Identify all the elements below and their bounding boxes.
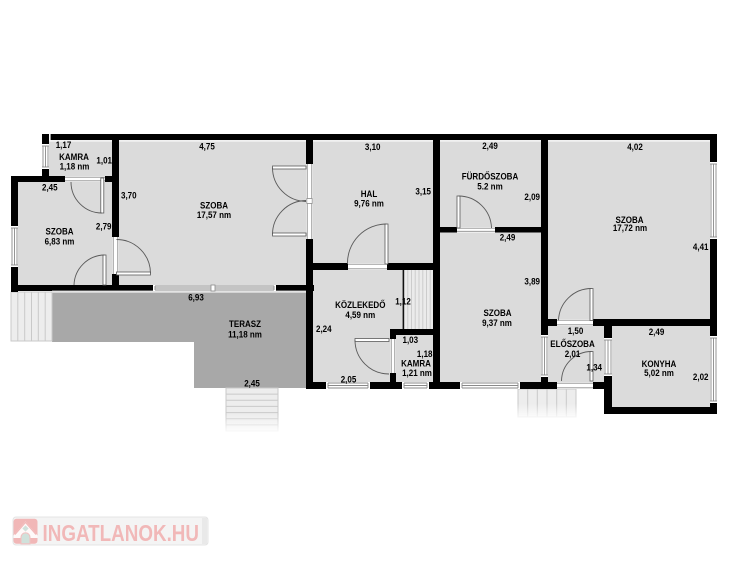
- svg-text:5,02 nm: 5,02 nm: [644, 368, 674, 378]
- svg-text:17,57 nm: 17,57 nm: [197, 210, 231, 220]
- svg-text:2,45: 2,45: [244, 378, 260, 388]
- svg-text:17,72 nm: 17,72 nm: [613, 223, 647, 233]
- svg-text:2,02: 2,02: [693, 372, 709, 382]
- svg-text:FÜRDŐSZOBA: FÜRDŐSZOBA: [462, 171, 519, 182]
- svg-text:11,18 nm: 11,18 nm: [228, 330, 262, 340]
- svg-text:3,89: 3,89: [524, 277, 540, 287]
- svg-text:2,05: 2,05: [341, 375, 357, 385]
- svg-text:1,50: 1,50: [568, 326, 584, 336]
- svg-text:3,70: 3,70: [121, 191, 137, 201]
- svg-text:4,75: 4,75: [199, 142, 215, 152]
- svg-text:KÖZLEKEDŐ: KÖZLEKEDŐ: [335, 299, 385, 310]
- svg-text:2,24: 2,24: [316, 324, 332, 334]
- svg-text:1,21 nm: 1,21 nm: [402, 368, 432, 378]
- svg-text:9,76 nm: 9,76 nm: [354, 199, 384, 209]
- svg-text:HAL: HAL: [361, 189, 378, 199]
- svg-text:INGATLANOK.HU: INGATLANOK.HU: [43, 520, 200, 546]
- svg-text:1,18: 1,18: [417, 349, 433, 359]
- svg-text:2,49: 2,49: [649, 327, 665, 337]
- svg-text:KAMRA: KAMRA: [59, 152, 89, 162]
- svg-text:5.2 nm: 5.2 nm: [477, 182, 502, 192]
- svg-text:1,17: 1,17: [56, 140, 72, 150]
- svg-text:2,49: 2,49: [500, 233, 516, 243]
- svg-text:SZOBA: SZOBA: [200, 201, 228, 211]
- svg-text:6,83 nm: 6,83 nm: [45, 237, 75, 247]
- svg-text:4,59 nm: 4,59 nm: [345, 310, 375, 320]
- svg-text:1,18 nm: 1,18 nm: [60, 162, 90, 172]
- svg-text:1,34: 1,34: [586, 363, 602, 373]
- svg-text:6,93: 6,93: [188, 293, 204, 303]
- svg-text:2,01: 2,01: [565, 349, 581, 359]
- svg-text:2,49: 2,49: [482, 141, 498, 151]
- svg-text:3,10: 3,10: [365, 142, 381, 152]
- svg-text:2,45: 2,45: [42, 183, 58, 193]
- svg-text:ELŐSZOBA: ELŐSZOBA: [550, 338, 595, 349]
- svg-text:3,15: 3,15: [415, 187, 431, 197]
- svg-text:1,12: 1,12: [395, 297, 411, 307]
- svg-text:4,41: 4,41: [693, 242, 709, 252]
- svg-text:SZOBA: SZOBA: [484, 308, 512, 318]
- svg-text:2,09: 2,09: [524, 192, 540, 202]
- svg-text:TERASZ: TERASZ: [229, 319, 261, 329]
- svg-text:1,03: 1,03: [403, 335, 419, 345]
- svg-text:1,01: 1,01: [96, 156, 112, 166]
- svg-text:4,02: 4,02: [627, 142, 643, 152]
- svg-text:9,37 nm: 9,37 nm: [482, 318, 512, 328]
- svg-text:KAMRA: KAMRA: [401, 359, 431, 369]
- svg-text:SZOBA: SZOBA: [46, 227, 74, 237]
- svg-text:2,79: 2,79: [96, 222, 112, 232]
